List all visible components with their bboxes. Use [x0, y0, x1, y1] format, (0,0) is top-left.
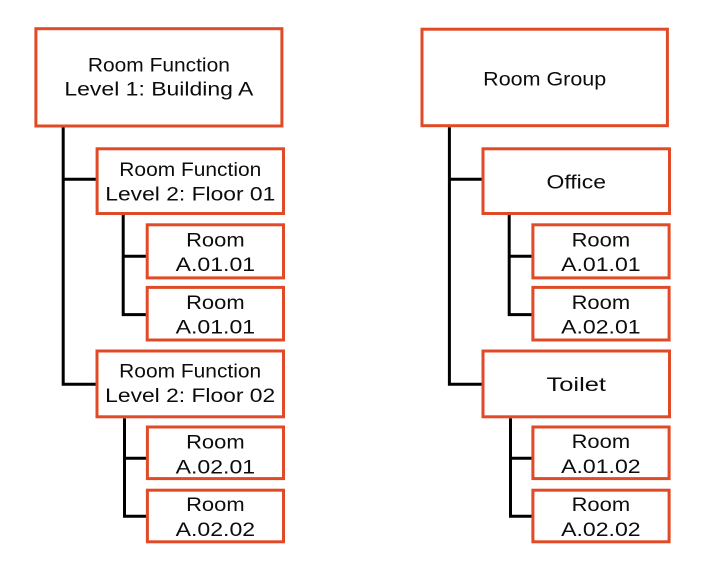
svg-text:A.01.01: A.01.01: [561, 255, 641, 276]
svg-text:Room: Room: [186, 293, 245, 314]
svg-text:Room: Room: [572, 495, 631, 516]
svg-text:Room: Room: [572, 293, 631, 314]
svg-text:A.02.02: A.02.02: [176, 520, 256, 541]
svg-text:Room: Room: [186, 495, 245, 516]
svg-text:Level 2: Floor 01: Level 2: Floor 01: [105, 184, 275, 205]
svg-text:Room: Room: [572, 432, 631, 453]
svg-text:A.01.01: A.01.01: [176, 318, 256, 339]
svg-text:A.01.01: A.01.01: [176, 255, 256, 276]
svg-text:Level 2: Floor 02: Level 2: Floor 02: [105, 386, 275, 407]
svg-text:Level 1: Building A: Level 1: Building A: [64, 80, 253, 101]
svg-text:A.02.01: A.02.01: [561, 318, 641, 339]
svg-text:A.01.02: A.01.02: [561, 457, 641, 478]
svg-text:A.02.01: A.02.01: [176, 457, 256, 478]
svg-text:A.02.02: A.02.02: [561, 520, 641, 541]
svg-text:Room Group: Room Group: [483, 69, 606, 90]
svg-text:Room: Room: [572, 230, 631, 251]
svg-text:Room: Room: [186, 433, 245, 454]
svg-text:Toilet: Toilet: [547, 375, 607, 396]
svg-text:Room Function: Room Function: [119, 362, 261, 383]
svg-text:Room Function: Room Function: [88, 56, 230, 77]
svg-text:Room Function: Room Function: [119, 160, 261, 181]
svg-text:Room: Room: [186, 230, 245, 251]
svg-text:Office: Office: [547, 173, 607, 194]
